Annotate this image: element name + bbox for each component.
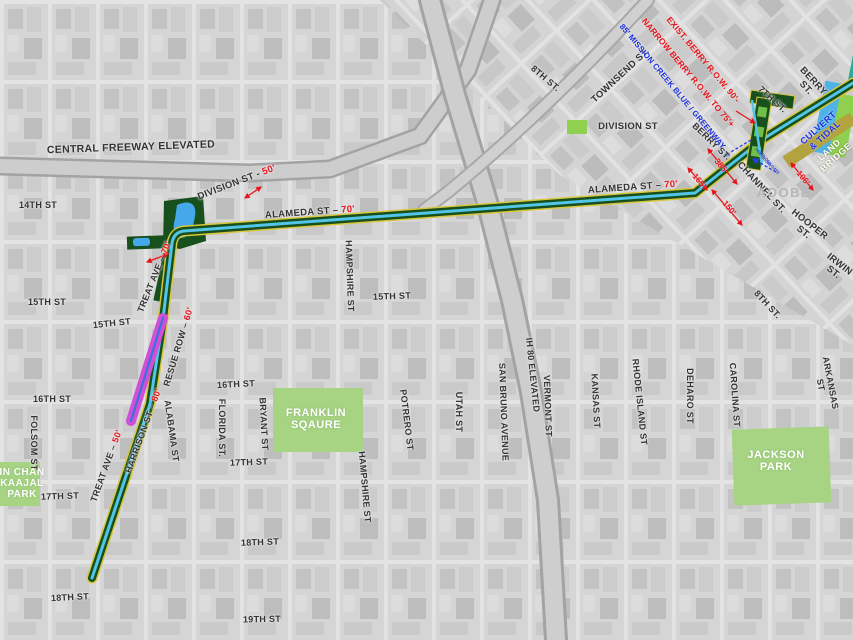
jackson-park-area <box>732 426 832 505</box>
planning-map: CENTRAL FREEWAY ELEVATED14TH STDIVISION … <box>0 0 853 640</box>
in-chan-kaajal-park-area <box>0 462 40 506</box>
basemap-canvas <box>0 0 853 640</box>
franklin-square-area <box>273 388 363 452</box>
small-green-patch-division <box>567 120 587 134</box>
